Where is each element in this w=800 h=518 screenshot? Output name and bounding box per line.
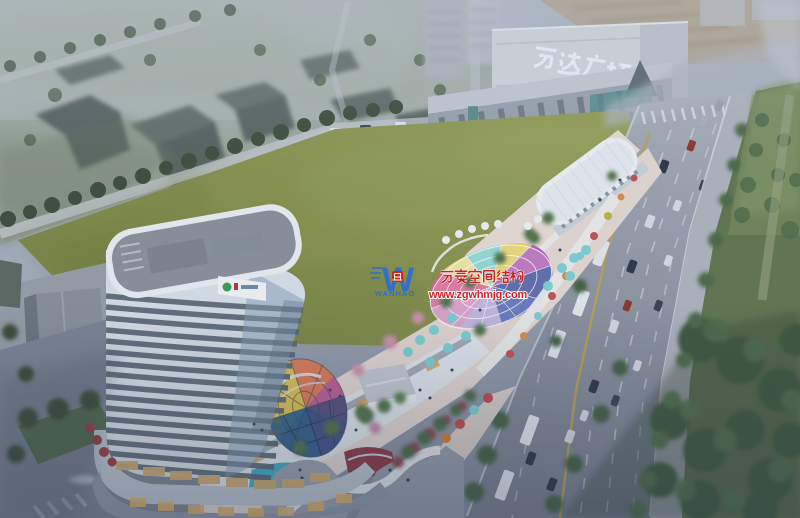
svg-text:WANHAO: WANHAO	[375, 289, 415, 298]
svg-text:www.zgwhmjg.com: www.zgwhmjg.com	[428, 289, 527, 301]
